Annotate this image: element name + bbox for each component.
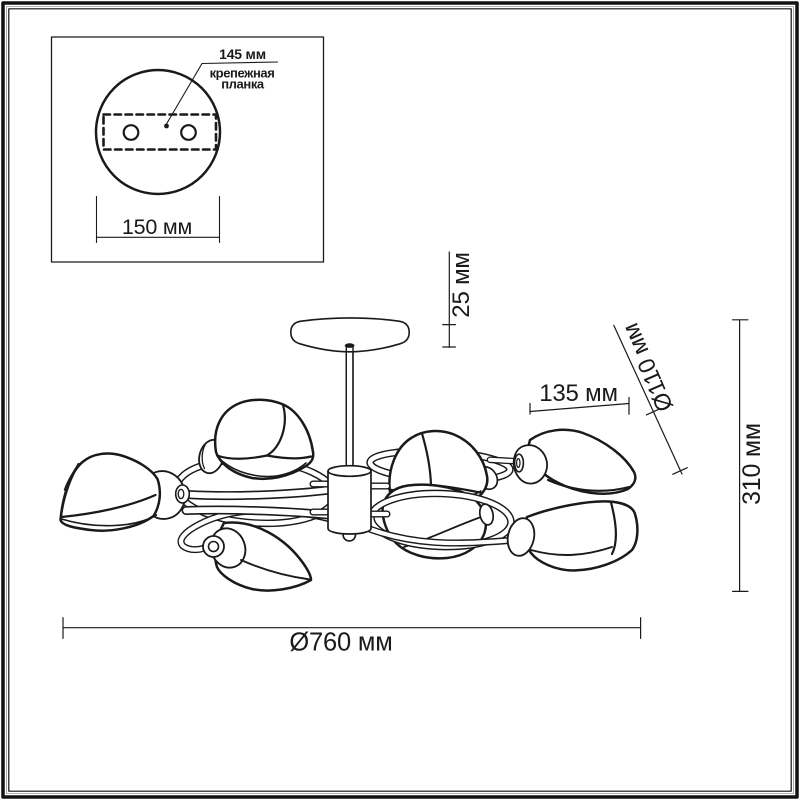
svg-text:145 мм: 145 мм	[219, 46, 266, 62]
svg-text:150 мм: 150 мм	[122, 215, 192, 239]
svg-text:25 мм: 25 мм	[448, 252, 475, 317]
svg-text:Ø760 мм: Ø760 мм	[289, 629, 392, 657]
svg-text:310 мм: 310 мм	[738, 423, 766, 505]
svg-text:планка: планка	[221, 77, 265, 92]
svg-text:135 мм: 135 мм	[539, 380, 618, 407]
